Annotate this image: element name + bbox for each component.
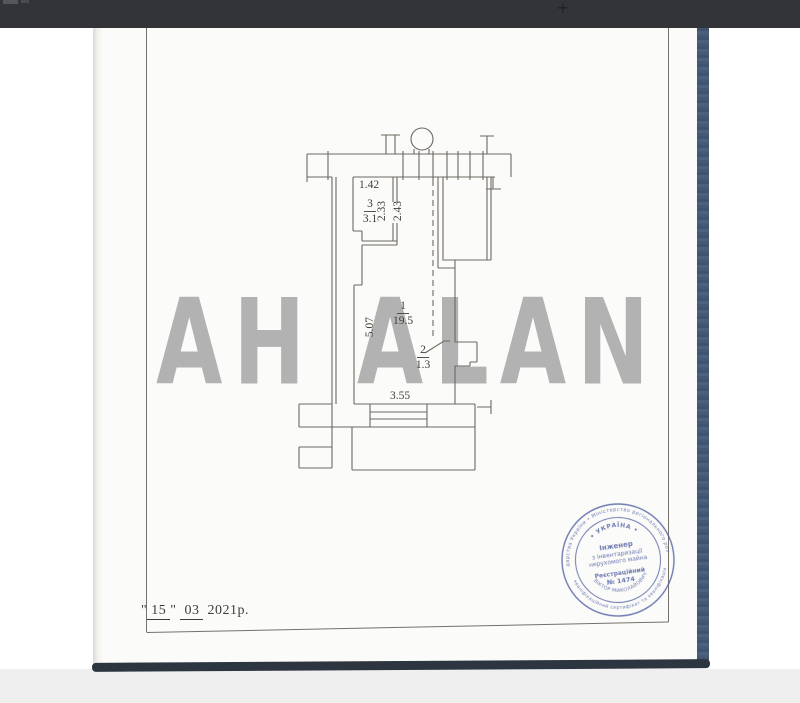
top-left-artifact-2 bbox=[21, 0, 29, 3]
room3-number: 3 bbox=[364, 198, 376, 212]
dim-room1-height: 5.07 bbox=[364, 317, 376, 337]
dim-room1-width: 3.55 bbox=[390, 390, 410, 402]
engineer-stamp: господарства України • Міністерство регі… bbox=[548, 490, 688, 630]
date-month: 03 bbox=[180, 603, 203, 620]
dim-room3-left-depth: 2.33 bbox=[376, 201, 388, 221]
date-close-quote: " bbox=[170, 603, 176, 618]
document-date: "15" 03 2021р. bbox=[141, 603, 249, 620]
dim-room3-width: 1.42 bbox=[359, 179, 379, 191]
date-day: 15 bbox=[147, 603, 170, 620]
viewer-top-bar: + bbox=[0, 0, 800, 28]
chimney-circle bbox=[411, 128, 433, 150]
room2-number: 2 bbox=[417, 344, 429, 358]
table-surface bbox=[0, 669, 800, 703]
room2-area: 1.3 bbox=[411, 359, 435, 371]
room1-area: 19.5 bbox=[390, 315, 416, 327]
room2-label: 2 1.3 bbox=[411, 344, 435, 371]
zoom-plus-icon[interactable]: + bbox=[556, 0, 569, 17]
top-left-artifact bbox=[3, 0, 18, 4]
room1-label: 1 19.5 bbox=[390, 300, 416, 327]
svg-text:• УКРАЇНА •: • УКРАЇНА • bbox=[587, 519, 640, 541]
room1-number: 1 bbox=[397, 300, 409, 314]
dim-room3-right-depth: 2.43 bbox=[392, 201, 404, 221]
stamp-country-text: • УКРАЇНА • bbox=[587, 519, 640, 541]
viewer-screen: + АН ALAN bbox=[0, 0, 800, 703]
date-year: 2021р. bbox=[207, 603, 249, 618]
